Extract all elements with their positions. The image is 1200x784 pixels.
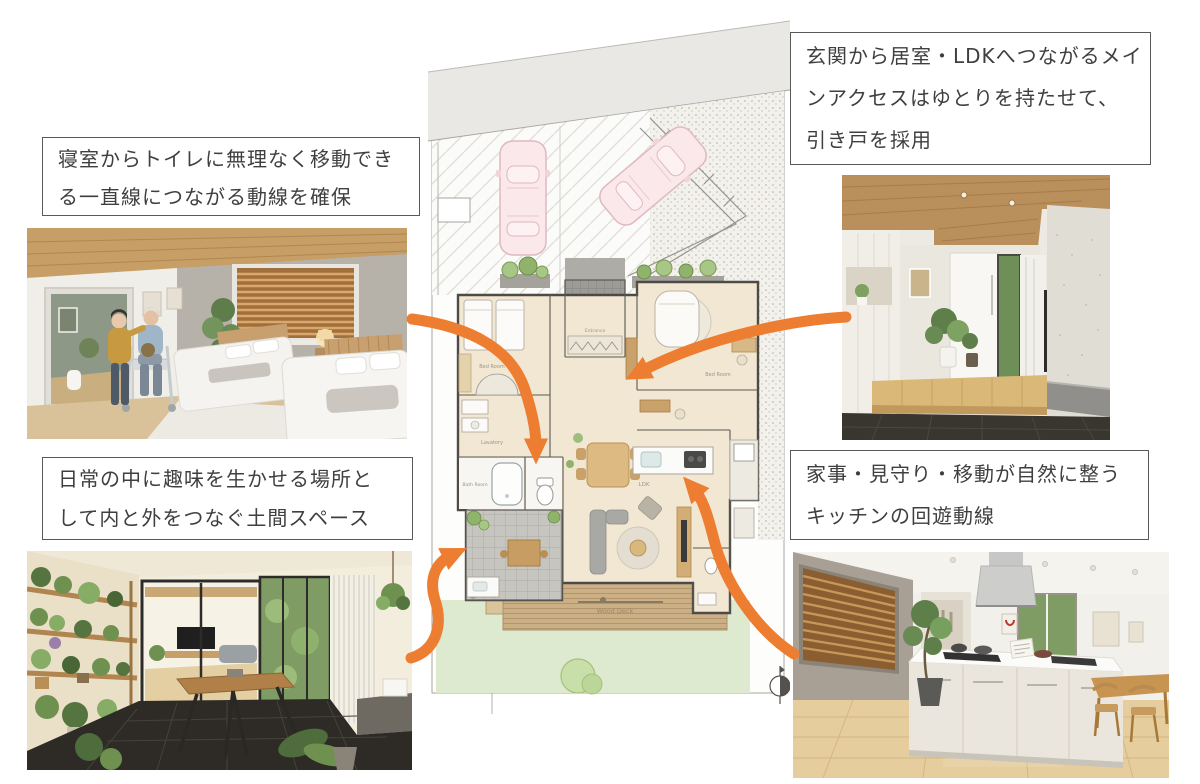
hamper bbox=[67, 370, 81, 390]
room-label: Entrance bbox=[585, 328, 606, 334]
car bbox=[496, 141, 550, 255]
callout-entrance-access: 玄関から居室・LDKへつながるメイ ンアクセスはゆとりを持たせて、 引き戸を採用 bbox=[790, 32, 1151, 165]
sink-basin bbox=[383, 679, 407, 696]
wall-art bbox=[1093, 612, 1119, 646]
room-label: LDK bbox=[639, 482, 650, 488]
niche-plant bbox=[855, 284, 869, 298]
bathroom: Bath Room bbox=[459, 458, 524, 509]
bag bbox=[141, 343, 155, 357]
wall-art bbox=[910, 269, 930, 297]
wall-art bbox=[167, 288, 182, 309]
table-items bbox=[227, 669, 243, 677]
entrance-photo bbox=[842, 175, 1110, 440]
doma-space bbox=[466, 510, 562, 600]
sofa bbox=[219, 645, 257, 663]
deck-label: Wood Deck bbox=[597, 607, 634, 615]
callout-kitchen-circulation: 家事・見守り・移動が自然に整う キッチンの回遊動線 bbox=[790, 450, 1149, 540]
callout-line: 寝室からトイレに無理なく移動でき bbox=[58, 140, 404, 178]
callout-line: して内と外をつなぐ土間スペース bbox=[58, 499, 397, 538]
room-label: Lavatory bbox=[481, 440, 503, 446]
callout-line: ンアクセスはゆとりを持たせて、 bbox=[806, 77, 1135, 119]
bedroom-photo bbox=[27, 228, 407, 439]
tile-floor bbox=[842, 413, 1110, 440]
wall-art bbox=[59, 308, 77, 332]
hallway bbox=[1020, 255, 1046, 387]
bowl bbox=[1034, 650, 1052, 658]
entrance-step bbox=[872, 375, 1047, 415]
indoor-plant bbox=[149, 645, 165, 661]
wall-art bbox=[1129, 622, 1143, 642]
callout-line: 日常の中に趣味を生かせる場所と bbox=[58, 460, 397, 499]
garden-window bbox=[260, 577, 330, 715]
gravel-strip bbox=[758, 300, 784, 540]
indoor-plant bbox=[566, 460, 574, 468]
room-label: Bath Room bbox=[462, 482, 488, 488]
kitchen-island bbox=[909, 638, 1123, 768]
sliding-door bbox=[950, 253, 1020, 381]
kitchen-photo bbox=[793, 552, 1169, 778]
downlight bbox=[961, 192, 967, 198]
callout-line: 引き戸を採用 bbox=[806, 119, 1135, 161]
gate-storage bbox=[438, 198, 470, 222]
callout-bedroom-toilet: 寝室からトイレに無理なく移動でき る一直線につながる動線を確保 bbox=[42, 137, 420, 216]
tv bbox=[177, 627, 215, 649]
downlight bbox=[1009, 200, 1015, 206]
doma-photo bbox=[27, 551, 412, 770]
slide: 寝室からトイレに無理なく移動でき る一直線につながる動線を確保 玄関から居室・L… bbox=[0, 0, 1200, 784]
open-doorway-view bbox=[998, 255, 1020, 381]
door-handle bbox=[1044, 290, 1047, 372]
room-label: Bed Room bbox=[705, 372, 731, 378]
pot bbox=[974, 646, 992, 655]
tv-board bbox=[165, 651, 227, 658]
callout-line: キッチンの回遊動線 bbox=[806, 495, 1133, 537]
site-floor-plan: Wood Deck bbox=[428, 8, 790, 715]
callout-doma-space: 日常の中に趣味を生かせる場所と して内と外をつなぐ土間スペース bbox=[42, 457, 413, 540]
indoor-plant bbox=[573, 433, 583, 443]
callout-line: る一直線につながる動線を確保 bbox=[58, 178, 404, 216]
hall-plant bbox=[79, 338, 99, 358]
pot bbox=[951, 644, 967, 653]
callout-line: 家事・見守り・移動が自然に整う bbox=[806, 453, 1133, 495]
toilet-room bbox=[526, 458, 562, 509]
callout-line: 玄関から居室・LDKへつながるメイ bbox=[806, 35, 1135, 77]
room-label: Bed Room bbox=[479, 364, 505, 370]
